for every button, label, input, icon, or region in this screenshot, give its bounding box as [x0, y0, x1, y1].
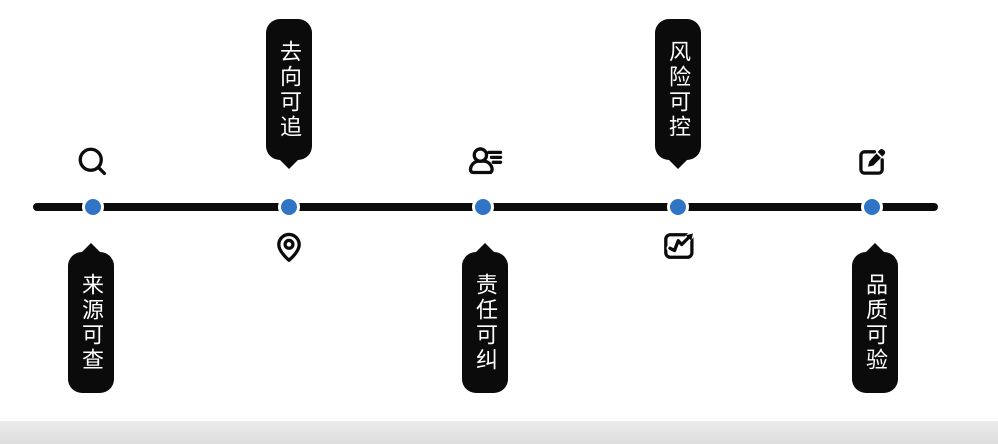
chart-trend-icon [661, 228, 697, 264]
timeline-node-dot [278, 196, 300, 218]
timeline-node-dot [472, 196, 494, 218]
search-icon [75, 144, 111, 180]
timeline-node-dot [82, 196, 104, 218]
location-pin-icon [271, 228, 307, 264]
timeline-label-bubble: 来源可查 [68, 252, 114, 393]
user-list-icon [466, 144, 505, 180]
bubble-label: 品质可验 [864, 273, 886, 373]
timeline-label-bubble: 风险可控 [655, 19, 701, 160]
timeline-node-dot [861, 196, 883, 218]
traceability-timeline-diagram: 来源可查 去向可追 责任可纠 风险可控 [0, 0, 998, 444]
footer-gray-bar [0, 421, 998, 444]
edit-icon [854, 144, 890, 180]
timeline-label-bubble: 品质可验 [852, 252, 898, 393]
timeline-node-dot [667, 196, 689, 218]
bubble-label: 风险可控 [667, 40, 689, 140]
timeline-label-bubble: 去向可追 [266, 19, 312, 160]
bubble-label: 责任可纠 [474, 273, 496, 373]
timeline-label-bubble: 责任可纠 [462, 252, 508, 393]
bubble-label: 去向可追 [278, 40, 300, 140]
bubble-label: 来源可查 [80, 273, 102, 373]
